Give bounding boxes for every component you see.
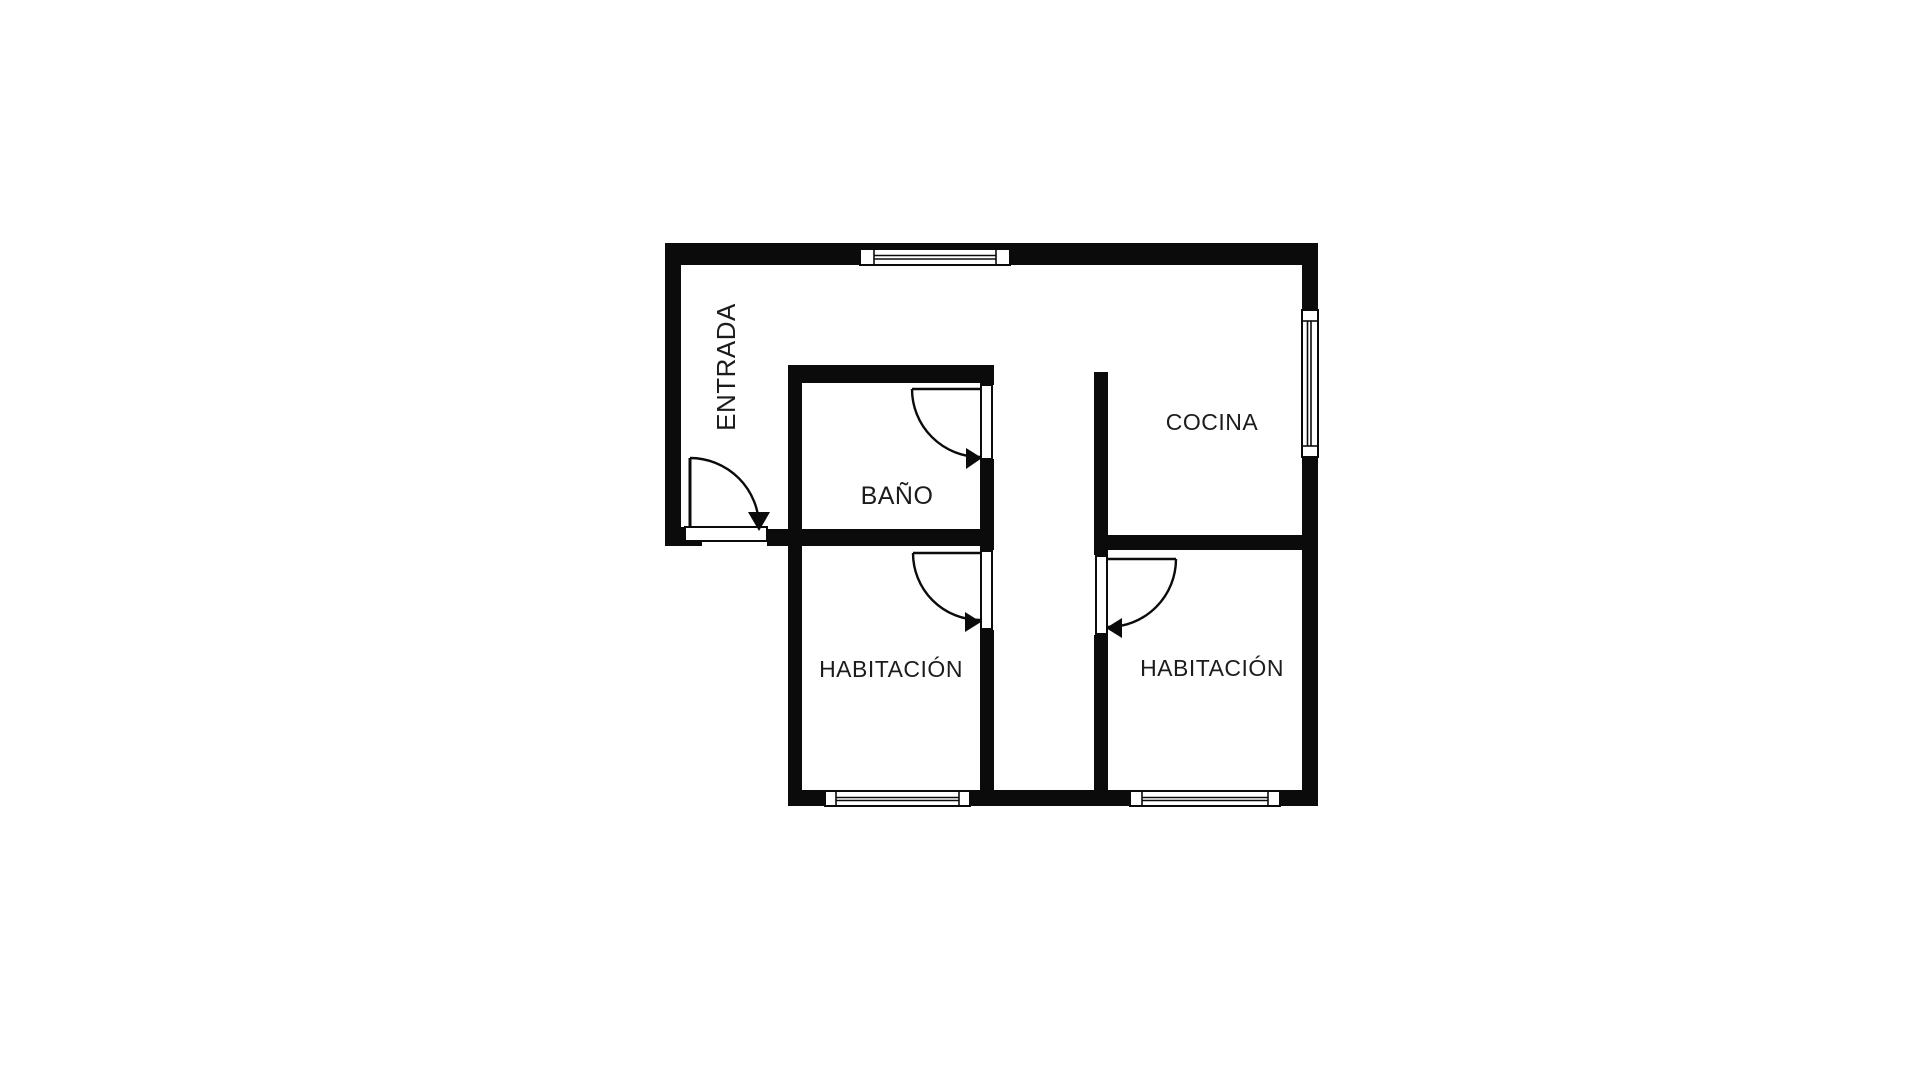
window-bottom-left [825, 791, 970, 806]
corridor-right-wall-lower [1094, 635, 1108, 806]
room-label-entrada: ENTRADA [711, 303, 741, 431]
bano-top-wall [788, 365, 993, 383]
entry-threshold [685, 527, 767, 541]
bano-door-leaf [981, 385, 992, 459]
entry-door [685, 458, 770, 541]
bano-door-swing-arc [912, 389, 980, 457]
habitacion-izquierda-swing-arc [913, 553, 980, 620]
wall-left-entrada [665, 243, 681, 542]
entry-door-swing-arc [690, 458, 759, 527]
corridor-right-wall-upper [1094, 372, 1108, 555]
habitacion-izquierda-door-leaf [981, 551, 992, 629]
room-label-bano: BAÑO [861, 481, 934, 510]
corridor-left-wall-lower [980, 630, 994, 806]
window-top [860, 249, 1010, 265]
habitacion-derecha-door [1096, 556, 1176, 638]
habitacion-izquierda-door [913, 551, 992, 632]
bano-door [912, 385, 992, 469]
room-label-cocina: COCINA [1166, 409, 1259, 435]
divider-cocina-habitacion [1094, 535, 1318, 550]
habitacion-derecha-swing-arc [1108, 559, 1176, 627]
west-bedroom-left-wall [788, 365, 802, 806]
room-label-habitacion-derecha: HABITACIÓN [1140, 655, 1284, 681]
habitacion-derecha-door-leaf [1096, 556, 1107, 634]
room-label-habitacion-izquierda: HABITACIÓN [819, 656, 963, 682]
divider-bano-habitacion [767, 529, 993, 546]
floor-plan-drawing: ENTRADA BAÑO COCINA HABITACIÓN HABITACIÓ… [0, 0, 1920, 1080]
floor-plan-page: ENTRADA BAÑO COCINA HABITACIÓN HABITACIÓ… [0, 0, 1920, 1080]
window-right [1302, 310, 1318, 457]
habitacion-derecha-door-arrow [1106, 618, 1122, 638]
window-bottom-right [1130, 791, 1280, 806]
corridor-left-wall-middle [980, 459, 994, 550]
windows [825, 249, 1318, 806]
corridor-left-wall-upper-stub [980, 365, 994, 385]
habitacion-izquierda-door-arrow [965, 612, 981, 632]
bano-door-arrow [966, 448, 982, 469]
